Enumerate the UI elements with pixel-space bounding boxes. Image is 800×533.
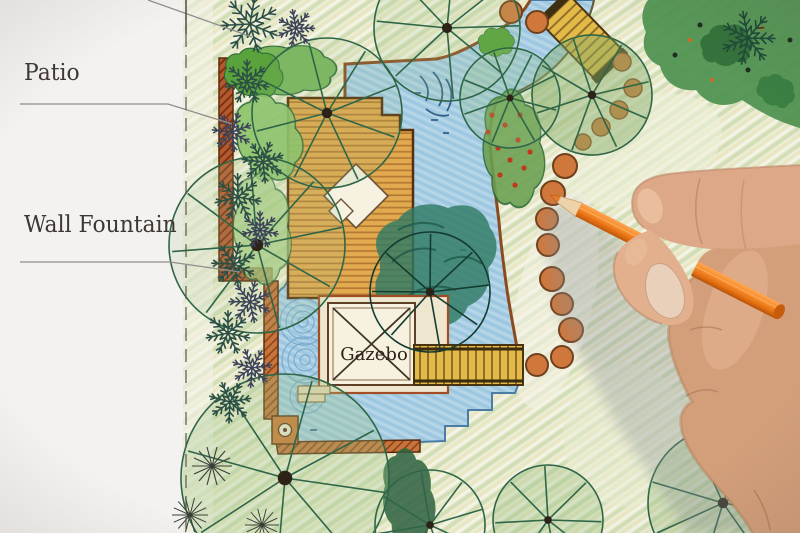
photo-of-landscape-plan: Patio Wall Fountain Gazebo	[0, 0, 800, 533]
gazebo-label: Gazebo	[336, 344, 412, 365]
photo-vignette	[0, 0, 800, 533]
patio-label: Patio	[24, 60, 80, 86]
plan-drawing	[0, 0, 800, 533]
wall-fountain-label: Wall Fountain	[24, 212, 177, 238]
